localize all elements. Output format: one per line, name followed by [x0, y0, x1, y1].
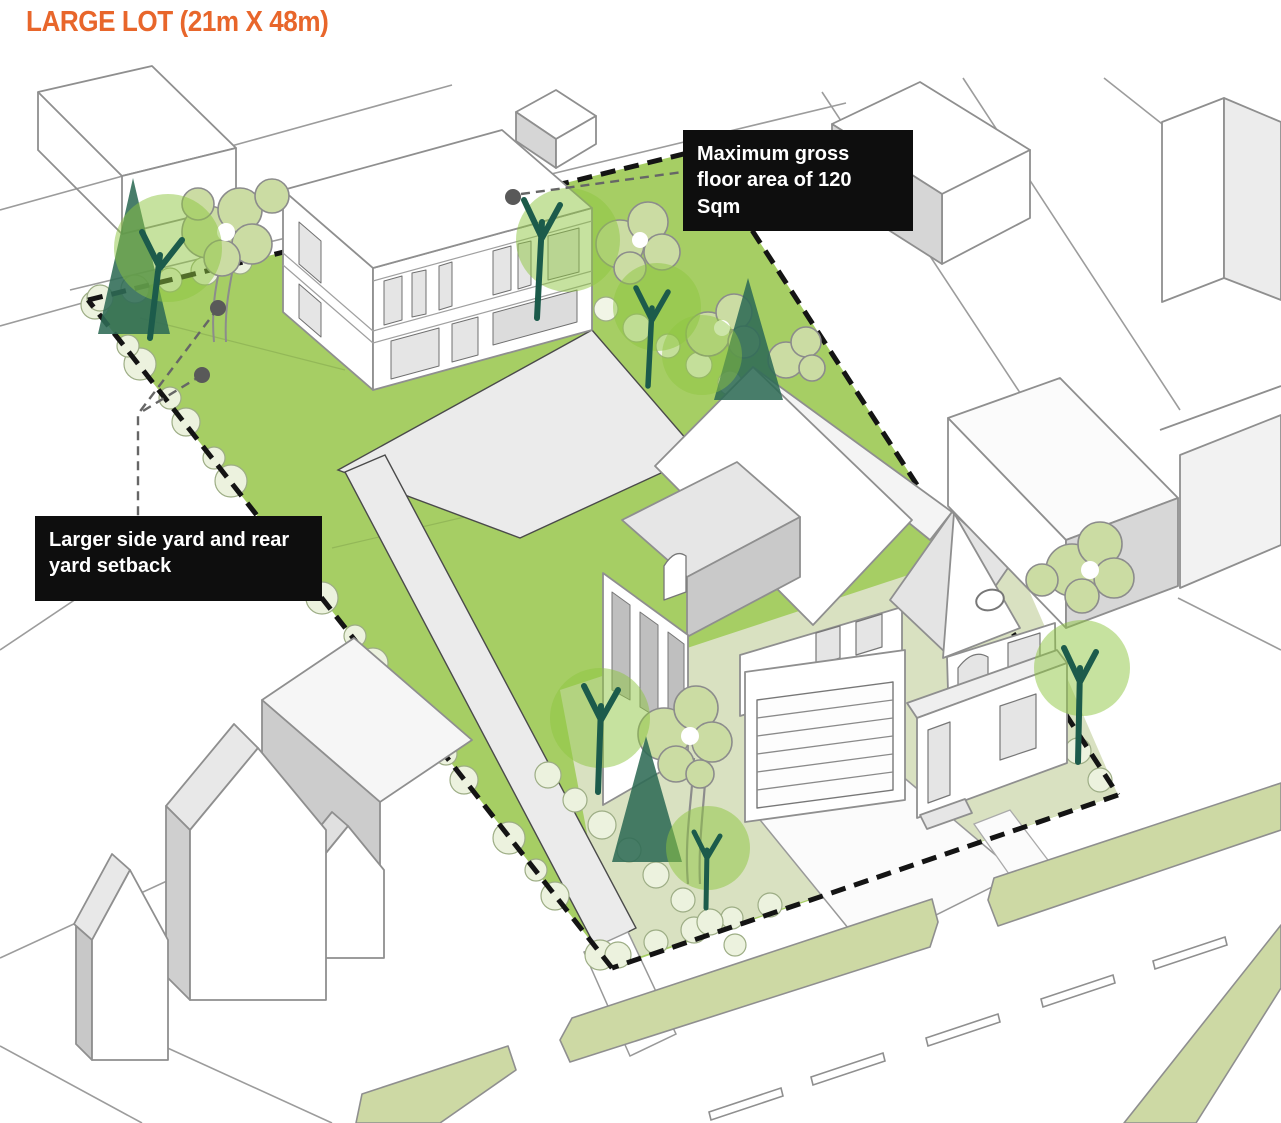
porch-door: [928, 722, 950, 803]
street: [356, 776, 1281, 1123]
callout-max-floor-area: Maximum gross floor area of 120 Sqm: [683, 130, 913, 231]
leader-dot-side-yard: [210, 300, 226, 316]
lane-dash: [811, 1053, 885, 1085]
dormer-arch-window: [664, 554, 686, 600]
leader-dot-roof: [505, 189, 521, 205]
boulevard-strip-left: [356, 1046, 516, 1123]
canopy-rear-left: [114, 194, 222, 302]
site-plan-diagram: Maximum gross floor area of 120 Sqm Larg…: [0, 0, 1281, 1123]
leader-dot-rear-yard: [194, 367, 210, 383]
neighbor-building-top-right-corner: [1162, 98, 1281, 302]
lane-dash: [1153, 937, 1227, 969]
callout-setback: Larger side yard and rear yard setback: [35, 516, 322, 601]
canopy-rear-right-3: [662, 315, 742, 395]
callout-max-floor-area-text: Maximum gross floor area of 120 Sqm: [697, 143, 852, 218]
lane-dash: [1041, 975, 1115, 1007]
boulevard-strip-far-corner: [1124, 925, 1281, 1123]
callout-setback-text: Larger side yard and rear yard setback: [49, 529, 289, 577]
lane-dash: [926, 1014, 1000, 1046]
canopy-rear-right-1: [516, 188, 620, 292]
porch-window: [1000, 694, 1036, 760]
neighbor-houses-bottom-left: [74, 638, 472, 1060]
lane-dash: [709, 1088, 783, 1120]
